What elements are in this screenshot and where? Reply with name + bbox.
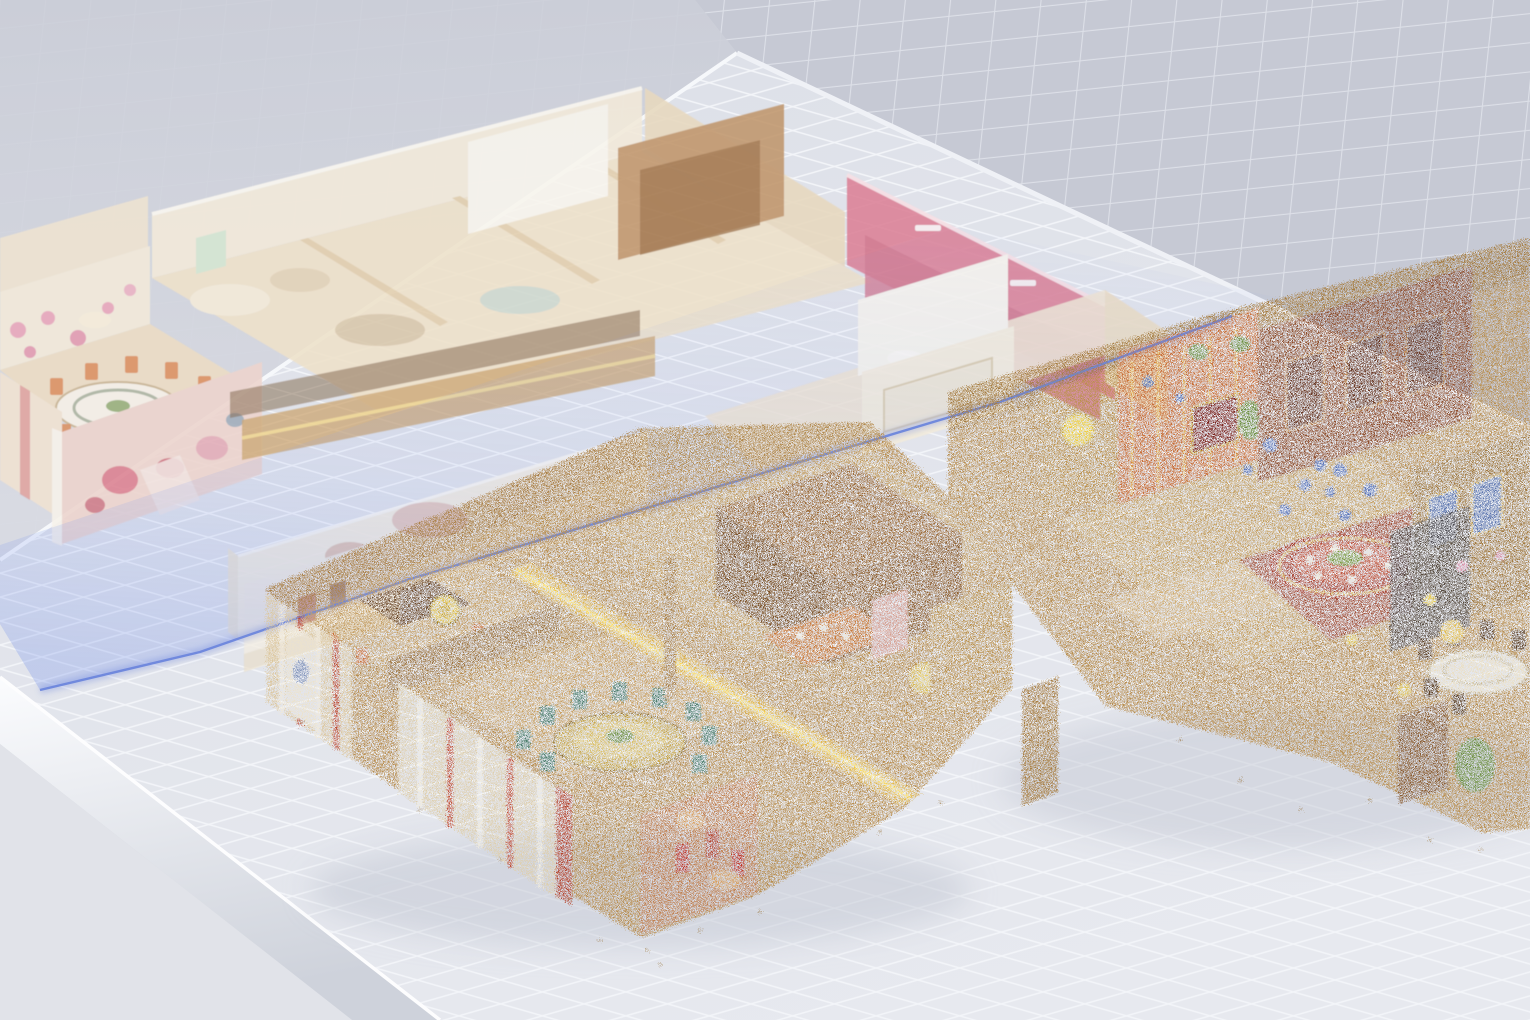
frame-blue-art-2: [1472, 474, 1502, 536]
left-wall-blue-art: [293, 660, 309, 684]
fr-yellow-floral-1: [1397, 683, 1411, 697]
yellow-ball-lamp: [1062, 414, 1094, 446]
fr-gold-chandelier: [1440, 620, 1464, 644]
roomA-sunflower-inner: [438, 603, 452, 617]
viewport-3d[interactable]: [0, 0, 1530, 1020]
banquet-centerpiece: [1327, 550, 1363, 566]
roomC-red-post: [556, 786, 572, 906]
roomC-centerpiece: [606, 729, 634, 743]
fr-yellow-floral-2: [1346, 634, 1358, 646]
fr-cabinet: [1398, 700, 1448, 804]
upper-left-wall-stripe: [20, 385, 30, 500]
roomB-pink-curtain: [872, 588, 908, 660]
upper-chandelier: [79, 312, 111, 328]
roomB-post: [664, 556, 676, 700]
right-sliver-wall: [1022, 676, 1058, 806]
